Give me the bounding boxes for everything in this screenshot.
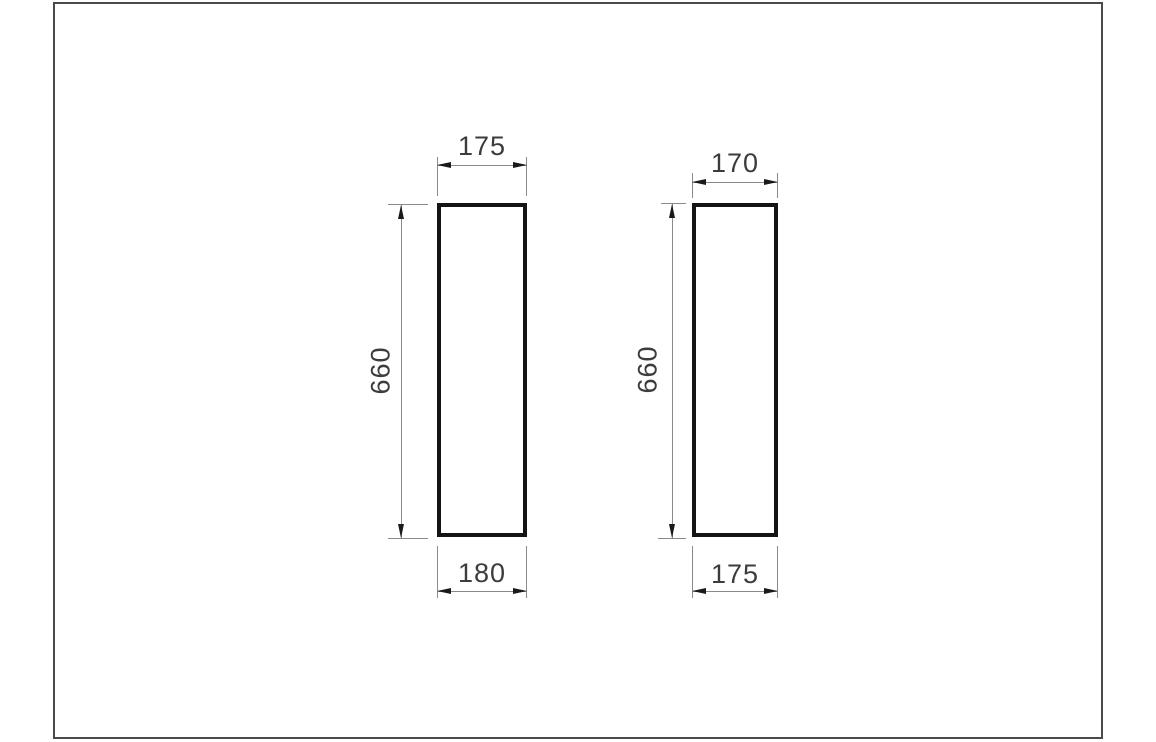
left-height-label: 660: [368, 331, 395, 411]
arrow-left-icon: [692, 588, 706, 594]
drawing-frame: [53, 2, 1103, 739]
arrow-left-icon: [437, 588, 451, 594]
left-height-dim-line: [401, 205, 402, 538]
arrow-right-icon: [764, 588, 778, 594]
left-height-ext-line-bottom: [388, 538, 428, 539]
arrow-left-icon: [692, 179, 706, 185]
arrow-right-icon: [513, 588, 527, 594]
arrow-down-icon: [398, 524, 404, 538]
left-bottom-width-label: 180: [437, 560, 527, 587]
right-bottom-width-label: 175: [692, 561, 778, 588]
arrow-right-icon: [513, 162, 527, 168]
right-height-label: 660: [635, 330, 662, 410]
drawing-canvas: 175 660 180 170 660: [0, 0, 1156, 742]
right-height-ext-line-bottom: [658, 538, 686, 539]
arrow-up-icon: [398, 205, 404, 219]
arrow-down-icon: [669, 524, 675, 538]
left-panel-outline: [437, 203, 527, 537]
right-top-width-label: 170: [692, 150, 778, 177]
right-panel-outline: [692, 203, 778, 537]
left-height-ext-line-top: [388, 204, 428, 205]
arrow-up-icon: [669, 204, 675, 218]
arrow-right-icon: [764, 179, 778, 185]
right-height-dim-line: [672, 204, 673, 538]
left-top-width-label: 175: [437, 133, 527, 160]
arrow-left-icon: [437, 162, 451, 168]
